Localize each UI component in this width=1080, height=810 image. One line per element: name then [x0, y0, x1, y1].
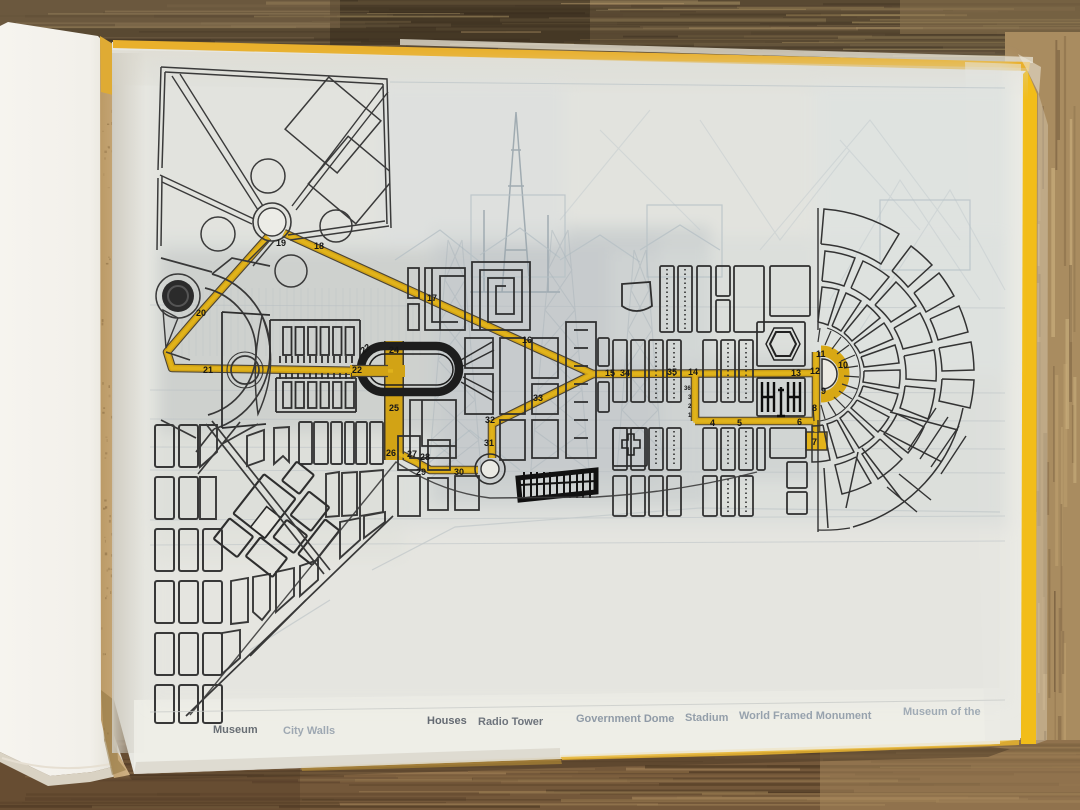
svg-text:35: 35: [667, 367, 677, 377]
svg-text:32: 32: [485, 415, 495, 425]
svg-text:15: 15: [605, 368, 615, 378]
svg-text:13: 13: [791, 368, 801, 378]
svg-text:Museum: Museum: [213, 724, 258, 736]
svg-text:12: 12: [810, 366, 820, 376]
svg-text:19: 19: [276, 238, 286, 248]
svg-text:4: 4: [710, 418, 715, 428]
svg-text:Government Dome: Government Dome: [576, 713, 674, 725]
svg-text:Museum of the: Museum of the: [903, 706, 981, 718]
svg-text:10: 10: [838, 360, 848, 370]
svg-text:City Walls: City Walls: [283, 725, 335, 737]
svg-text:14: 14: [688, 367, 698, 377]
svg-text:17: 17: [427, 293, 437, 303]
svg-text:9: 9: [821, 386, 826, 396]
svg-text:20: 20: [196, 308, 206, 318]
svg-text:8: 8: [812, 403, 817, 413]
svg-text:Houses: Houses: [427, 715, 467, 727]
svg-text:11: 11: [816, 349, 826, 359]
svg-text:28: 28: [420, 452, 430, 462]
svg-text:29: 29: [416, 467, 426, 477]
svg-text:6: 6: [797, 417, 802, 427]
svg-text:21: 21: [203, 365, 213, 375]
svg-text:34: 34: [620, 368, 630, 378]
svg-text:5: 5: [737, 418, 742, 428]
svg-text:33: 33: [533, 393, 543, 403]
svg-text:26: 26: [386, 448, 396, 458]
svg-text:25: 25: [389, 403, 399, 413]
svg-text:World Framed Monument: World Framed Monument: [739, 710, 872, 722]
svg-text:24: 24: [389, 345, 399, 355]
svg-text:7: 7: [812, 437, 817, 447]
svg-text:16: 16: [522, 335, 532, 345]
svg-text:Radio Tower: Radio Tower: [478, 716, 544, 728]
svg-text:30: 30: [454, 467, 464, 477]
svg-text:Stadium: Stadium: [685, 712, 729, 724]
svg-text:27: 27: [407, 449, 417, 459]
svg-text:31: 31: [484, 438, 494, 448]
svg-text:18: 18: [314, 241, 324, 251]
svg-text:22: 22: [352, 365, 362, 375]
svg-text:36: 36: [684, 386, 691, 392]
